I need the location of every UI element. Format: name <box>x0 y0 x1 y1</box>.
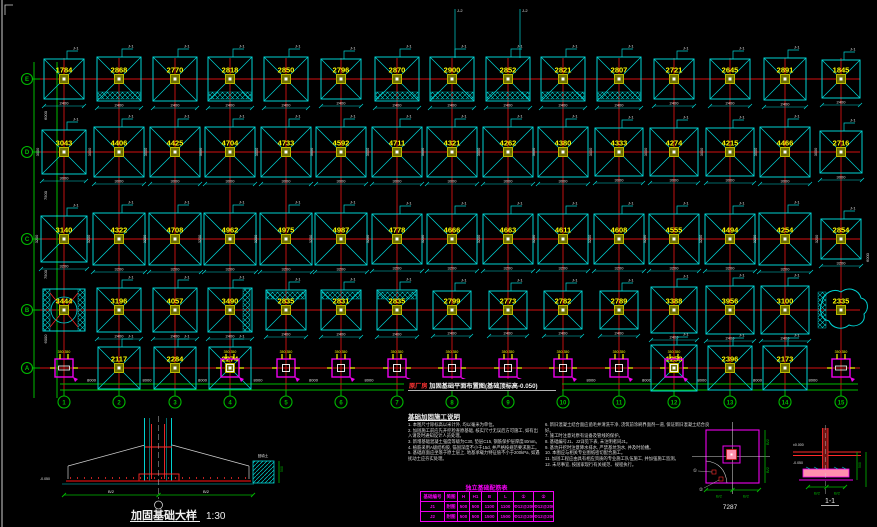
label: J-1 <box>794 114 800 119</box>
note-line: 3. 新增基础混凝土强度等级为C30, 垫层C15, 钢筋保护层厚度40mm。 <box>408 439 542 445</box>
label: J-1 <box>683 332 689 337</box>
section-flag <box>622 49 633 57</box>
load-value: 2850 <box>278 66 295 75</box>
label: 350 350 <box>58 350 71 354</box>
label: 3000 <box>115 179 125 184</box>
label: D <box>25 150 30 156</box>
table-row: J2附图50050015001500Φ12@200Φ12@200 <box>421 512 554 522</box>
load-value: 4592 <box>333 139 350 148</box>
label: 2400 <box>282 332 292 337</box>
section-flag <box>178 339 189 347</box>
table-header-cell: ① <box>514 492 534 502</box>
backfill-label: 回填土 <box>258 453 269 458</box>
cad-drawing-stage: J-2 J-2 EDCBA600075007500600012345678910… <box>0 0 877 527</box>
load-value: 4322 <box>111 226 128 235</box>
load-value: 4380 <box>555 139 572 148</box>
label: J-1 <box>517 44 523 49</box>
label: 350 350 <box>446 350 459 354</box>
load-value: 2891 <box>777 66 794 75</box>
label: J-1 <box>295 44 301 49</box>
label: J-1 <box>239 200 245 205</box>
label: 15 <box>838 400 845 406</box>
load-value: 4711 <box>389 139 405 148</box>
section-flag <box>233 119 244 127</box>
load-value: 2721 <box>666 66 683 75</box>
load-value: 4494 <box>722 226 740 235</box>
label: 3000 <box>814 148 818 156</box>
load-value: 4708 <box>167 226 184 235</box>
label: 3200 <box>532 235 536 243</box>
note-line: 6. 新旧混凝土结合面应凿毛并清洗干净, 浇筑前涂刷界面剂一道, 保证新旧混凝土… <box>545 422 715 433</box>
label: 2400 <box>615 103 625 108</box>
label: J-1 <box>350 114 356 119</box>
table-cell: 1100 <box>482 502 498 512</box>
label: A <box>25 366 30 372</box>
label: 6 <box>339 400 343 406</box>
label: 350 350 <box>335 350 348 354</box>
label: 3200 <box>615 266 625 271</box>
label: 2400 <box>559 103 569 108</box>
label: 8000 <box>254 378 264 383</box>
label: 7 <box>395 400 399 406</box>
notes-column-left: 1. 本图尺寸除标高以米计外, 均以毫米为单位。2. 加固施工前应先开挖检查原基… <box>408 422 542 462</box>
section-flag <box>566 49 577 57</box>
note-line: 2. 加固施工前应先开挖检查原基础, 核实尺寸无误后方可施工, 如有出入请及时通… <box>408 428 542 439</box>
label: 3200 <box>699 235 703 243</box>
row-axis-bubble: B <box>22 305 33 316</box>
section-flag <box>622 206 633 214</box>
dim-label: 500 <box>280 466 284 472</box>
label: 3000 <box>532 148 536 156</box>
section-flag <box>233 280 244 288</box>
section-flag <box>844 123 855 131</box>
col-axis-bubble: 2 <box>113 396 125 408</box>
section-flag <box>622 120 633 128</box>
label: 2400 <box>448 103 458 108</box>
label: J-1 <box>739 201 745 206</box>
dim-label: B/2 <box>765 438 770 445</box>
label: 2400 <box>559 331 569 336</box>
section-leader-lines: J-2 J-2 <box>455 8 528 58</box>
label: 3000 <box>60 176 70 181</box>
table-cell: J2 <box>421 512 445 522</box>
section-flag <box>122 49 133 57</box>
label: 3000 <box>837 175 847 180</box>
label: J-1 <box>683 274 689 279</box>
label: 2400 <box>393 332 403 337</box>
label: 2400 <box>171 103 181 108</box>
section-flag <box>400 49 411 57</box>
label: 3200 <box>254 235 258 243</box>
section-flag <box>566 206 577 214</box>
label: 5 <box>284 400 288 406</box>
leader-label: J-2 <box>522 8 528 13</box>
label: 8 <box>450 400 454 406</box>
label: 3200 <box>753 235 757 243</box>
label: J-1 <box>461 114 467 119</box>
load-value: 2870 <box>389 66 406 75</box>
label: 3000 <box>226 179 236 184</box>
label: 8000 <box>143 378 153 383</box>
table-cell: 500 <box>470 502 482 512</box>
label: 2400 <box>171 334 181 339</box>
load-value: 2770 <box>167 66 184 75</box>
label: J-1 <box>628 44 634 49</box>
section-flag <box>733 338 744 346</box>
foundation-E12: J-124002721 <box>652 46 696 109</box>
label: J-1 <box>517 201 523 206</box>
note-line: 5. 基础底面应坐落于原土层上, 地基承载力特征值不小于200kPa, 如遇扰动… <box>408 450 542 461</box>
load-value: 4057 <box>167 297 184 306</box>
label: 3200 <box>366 235 370 243</box>
label: 3000 <box>255 148 259 156</box>
label: J-1 <box>184 275 190 280</box>
label: J-1 <box>128 44 134 49</box>
label: 6000 <box>43 110 48 120</box>
backfill-hatch-block <box>253 461 274 483</box>
table-cell: 附图 <box>445 502 458 512</box>
label: 3000 <box>477 148 481 156</box>
label: 2400 <box>282 103 292 108</box>
label: E <box>25 77 29 83</box>
label: 3000 <box>589 148 593 156</box>
label: 3200 <box>504 266 514 271</box>
row-axis-bubble: C <box>22 234 33 245</box>
label: 3000 <box>754 148 758 156</box>
load-value: 2831 <box>333 297 350 306</box>
foundation-schedule-table: 基础编号简图HH1BL①②J1附图50050011001100Φ12@200Φ1… <box>420 491 554 522</box>
section-flag <box>455 283 466 291</box>
load-value: 1784 <box>56 66 74 75</box>
label: 3200 <box>60 264 70 269</box>
label: J-1 <box>572 44 578 49</box>
table-cell: 500 <box>470 512 482 522</box>
label: 8000 <box>587 378 597 383</box>
section-flag <box>233 339 244 347</box>
section-flag <box>511 283 522 291</box>
load-value: 2284 <box>167 355 185 364</box>
label: 8000 <box>198 378 208 383</box>
section-flag <box>344 119 355 127</box>
section-flag <box>178 49 189 57</box>
label: 3200 <box>448 266 458 271</box>
label: J-1 <box>295 277 301 282</box>
label: 350 350 <box>391 350 404 354</box>
section-flag <box>178 119 189 127</box>
section-flag <box>289 282 300 290</box>
section-flag <box>677 51 688 59</box>
load-value: 2835 <box>389 297 406 306</box>
label: 2400 <box>448 331 458 336</box>
label: 8000 <box>87 378 97 383</box>
label: J-1 <box>794 45 800 50</box>
section-flag <box>677 206 688 214</box>
section-flag <box>677 120 688 128</box>
load-value: 2782 <box>555 297 572 306</box>
dim-label: B/2 <box>203 489 210 494</box>
load-value: 2835 <box>278 297 295 306</box>
foundation-section-detail: 回填土 -0.050 B/2 B/2 500 加固基础大样 1:30 <box>40 416 284 522</box>
level-label: ±0.000 <box>793 443 804 447</box>
label: 3000 <box>448 179 458 184</box>
foundation-B15: 2335 <box>818 289 867 328</box>
label: 350 350 <box>613 350 626 354</box>
label: 2400 <box>615 331 625 336</box>
label: 10 <box>560 400 567 406</box>
table-cell: 1100 <box>498 502 514 512</box>
load-value: 4406 <box>111 139 128 148</box>
label: J-1 <box>461 201 467 206</box>
load-value: 2807 <box>611 66 628 75</box>
label: 3000 <box>171 179 181 184</box>
section-caption: 1-1 <box>825 498 835 505</box>
label: 2400 <box>115 103 125 108</box>
load-value: 4215 <box>722 139 739 148</box>
col-axis-bubble: 14 <box>779 396 791 408</box>
load-value: 2854 <box>833 226 851 235</box>
row-axis-bubble: E <box>22 74 33 85</box>
label: 2 <box>117 400 121 406</box>
load-value: 3196 <box>111 297 128 306</box>
label: J-1 <box>184 200 190 205</box>
level-label: -0.050 <box>793 461 803 465</box>
section-flag <box>122 119 133 127</box>
section-flag <box>455 49 466 57</box>
label: J-1 <box>517 114 523 119</box>
notes-title: 基础加固施工说明 <box>408 411 460 421</box>
col-axis-bubble: 6 <box>335 396 347 408</box>
load-value: 4555 <box>666 226 683 235</box>
dim-label: B/2 <box>716 494 723 499</box>
load-value: 2796 <box>333 66 350 75</box>
section-flag <box>788 278 799 286</box>
table-header-cell: H <box>458 492 470 502</box>
note-line: 12. 未尽事宜, 按国家现行有关规范、规程执行。 <box>545 462 715 468</box>
label: J-1 <box>406 114 412 119</box>
section-flag <box>67 122 78 130</box>
label: 3200 <box>337 267 347 272</box>
label: J-1 <box>184 44 190 49</box>
label: 3000 <box>366 148 370 156</box>
load-value: 2173 <box>777 355 794 364</box>
load-value: 4425 <box>167 139 184 148</box>
col-axis-bubble: 3 <box>169 396 181 408</box>
label: J-1 <box>350 200 356 205</box>
col-axis-bubble: 7 <box>391 396 403 408</box>
section-flag <box>344 51 355 59</box>
load-value: 1845 <box>833 66 850 75</box>
label: J-1 <box>73 203 79 208</box>
label: 3000 <box>199 148 203 156</box>
label: 2400 <box>781 102 791 107</box>
table-cell: Φ12@200 <box>514 512 534 522</box>
label: J-1 <box>406 277 412 282</box>
section-flag <box>400 282 411 290</box>
label: J-1 <box>128 200 134 205</box>
section-flag <box>788 50 799 58</box>
dim-label: 500 <box>858 462 862 468</box>
label: J-1 <box>572 278 578 283</box>
table-header-cell: L <box>498 492 514 502</box>
load-value: 2773 <box>500 297 517 306</box>
label: 3000 <box>282 179 292 184</box>
label: J-1 <box>73 46 79 51</box>
label: 2400 <box>337 332 347 337</box>
label: 3200 <box>309 235 313 243</box>
label: J-1 <box>850 206 856 211</box>
label: 3200 <box>35 235 39 243</box>
section-flag <box>566 283 577 291</box>
dim-label: B/2 <box>108 489 115 494</box>
label: J-1 <box>73 117 79 122</box>
table-cell: 1500 <box>482 512 498 522</box>
section-flag <box>67 51 78 59</box>
label: C <box>25 237 30 243</box>
foundation-E13: J-124002645 <box>708 46 752 109</box>
table-cell: 500 <box>458 502 470 512</box>
section-flag <box>455 119 466 127</box>
section-flag <box>289 119 300 127</box>
section-flag <box>566 119 577 127</box>
load-value: 4975 <box>278 226 295 235</box>
label: 7500 <box>43 269 48 279</box>
table-cell: 500 <box>458 512 470 522</box>
table-cell: Φ12@200 <box>534 512 554 522</box>
label: 2400 <box>837 100 847 105</box>
label: 3200 <box>198 235 202 243</box>
label: 8000 <box>642 378 652 383</box>
label: 3000 <box>559 179 569 184</box>
svg-text:原厂房 加固基础平面布置图(基础顶标高-0.: 原厂房 加固基础平面布置图(基础顶标高-0.050) <box>409 382 538 390</box>
footing-detail-caption: 7287 <box>723 504 738 511</box>
foundation-grid: EDCBA60007500750060001234567891011121314… <box>22 44 868 409</box>
section-flag <box>289 205 300 213</box>
load-value: 4274 <box>666 139 684 148</box>
foundation-E15: J-124001845 <box>820 47 862 108</box>
label: 3000 <box>88 148 92 156</box>
label: J-1 <box>128 275 134 280</box>
label: 7500 <box>43 190 48 200</box>
load-value: 4704 <box>222 139 240 148</box>
table-header-cell: H1 <box>470 492 482 502</box>
load-value: 2396 <box>722 355 739 364</box>
label: J-1 <box>239 114 245 119</box>
load-value: 4987 <box>333 226 350 235</box>
load-value: 4262 <box>500 139 517 148</box>
label: J-1 <box>184 114 190 119</box>
load-value: 2868 <box>111 66 128 75</box>
load-value: 3100 <box>777 297 794 306</box>
dim-label: B/2 <box>765 466 770 473</box>
edge-dim-label: 6000 <box>865 252 870 262</box>
foundation-E1: J-124001784 <box>42 46 86 109</box>
section-flag <box>733 51 744 59</box>
leader-label: J-2 <box>457 8 463 13</box>
label: 3200 <box>115 267 125 272</box>
col-axis-bubble: 4 <box>224 396 236 408</box>
label: 3000 <box>310 148 314 156</box>
label: 14 <box>782 400 789 406</box>
notes-column-right: 6. 新旧混凝土结合面应凿毛并清洗干净, 浇筑前涂刷界面剂一道, 保证新旧混凝土… <box>545 422 715 467</box>
section-flag <box>344 282 355 290</box>
label: 350 350 <box>502 350 515 354</box>
section-flag <box>733 206 744 214</box>
label: J-1 <box>295 114 301 119</box>
section-flag <box>67 208 78 216</box>
col-axis-bubble: 8 <box>446 396 458 408</box>
label: J-1 <box>628 201 634 206</box>
level-label: -0.050 <box>40 477 50 481</box>
label: J-1 <box>128 334 134 339</box>
label: 3200 <box>143 235 147 243</box>
table-cell: 1500 <box>498 512 514 522</box>
label: 2400 <box>337 101 347 106</box>
label: 3000 <box>144 148 148 156</box>
section-flag <box>844 211 855 219</box>
label: 8000 <box>365 378 375 383</box>
table-header-cell: ② <box>534 492 554 502</box>
label: 2400 <box>504 331 514 336</box>
label: J-1 <box>295 200 301 205</box>
rebar-callout-1: ① <box>693 468 698 473</box>
label: J-1 <box>517 278 523 283</box>
section-flag <box>122 339 133 347</box>
label: J-1 <box>850 47 856 52</box>
label: 350 350 <box>835 350 848 354</box>
section-flag <box>178 280 189 288</box>
label: J-1 <box>350 46 356 51</box>
table-cell: 附图 <box>445 512 458 522</box>
section-flag <box>733 278 744 286</box>
label: B <box>25 308 30 314</box>
load-value: 3043 <box>56 139 73 148</box>
col-axis-bubble: 13 <box>724 396 736 408</box>
load-value: 3140 <box>56 226 73 235</box>
section-flag <box>233 205 244 213</box>
label: J-1 <box>628 278 634 283</box>
label: J-1 <box>184 334 190 339</box>
label: 3200 <box>421 235 425 243</box>
sheet-border-marks <box>2 0 13 527</box>
load-value: 2645 <box>722 66 739 75</box>
label: 3200 <box>87 235 91 243</box>
label: 3 <box>173 400 177 406</box>
table-cell: J1 <box>421 502 445 512</box>
dim-label: B/2 <box>743 494 750 499</box>
label: 2400 <box>670 101 680 106</box>
col-axis-bubble: 11 <box>613 396 625 408</box>
label: J-1 <box>239 334 245 339</box>
section-flag <box>788 338 799 346</box>
label: 3000 <box>700 148 704 156</box>
section-1-1-detail: ±0.000 -0.050 B/2 B/2 500 1-1 <box>793 425 866 506</box>
label: 3200 <box>643 235 647 243</box>
label: J-1 <box>239 44 245 49</box>
label: J-1 <box>572 114 578 119</box>
load-value: 4663 <box>500 226 517 235</box>
table-row: J1附图50050011001100Φ12@200Φ12@200 <box>421 502 554 512</box>
label: 4 <box>228 400 232 406</box>
section-flag <box>788 205 799 213</box>
label: 3000 <box>644 148 648 156</box>
label: J-1 <box>461 44 467 49</box>
label: 1 <box>62 400 66 406</box>
section-flag <box>400 119 411 127</box>
load-value: 4466 <box>777 139 794 148</box>
label: 2400 <box>226 103 236 108</box>
label: J-1 <box>683 46 689 51</box>
load-value: 4733 <box>278 139 295 148</box>
